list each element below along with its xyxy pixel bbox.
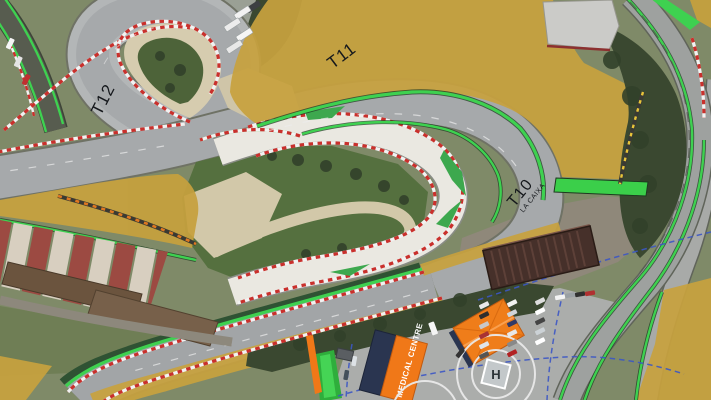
helipad-h-mark: H <box>491 367 500 382</box>
satellite-track-map: MEDICAL CENTRE H T12 T11 <box>0 0 711 400</box>
tree <box>165 83 175 93</box>
building-top-right <box>543 0 619 50</box>
tree <box>155 51 165 61</box>
circuit-aerial-svg: MEDICAL CENTRE H T12 T11 <box>0 0 711 400</box>
tree <box>174 64 186 76</box>
